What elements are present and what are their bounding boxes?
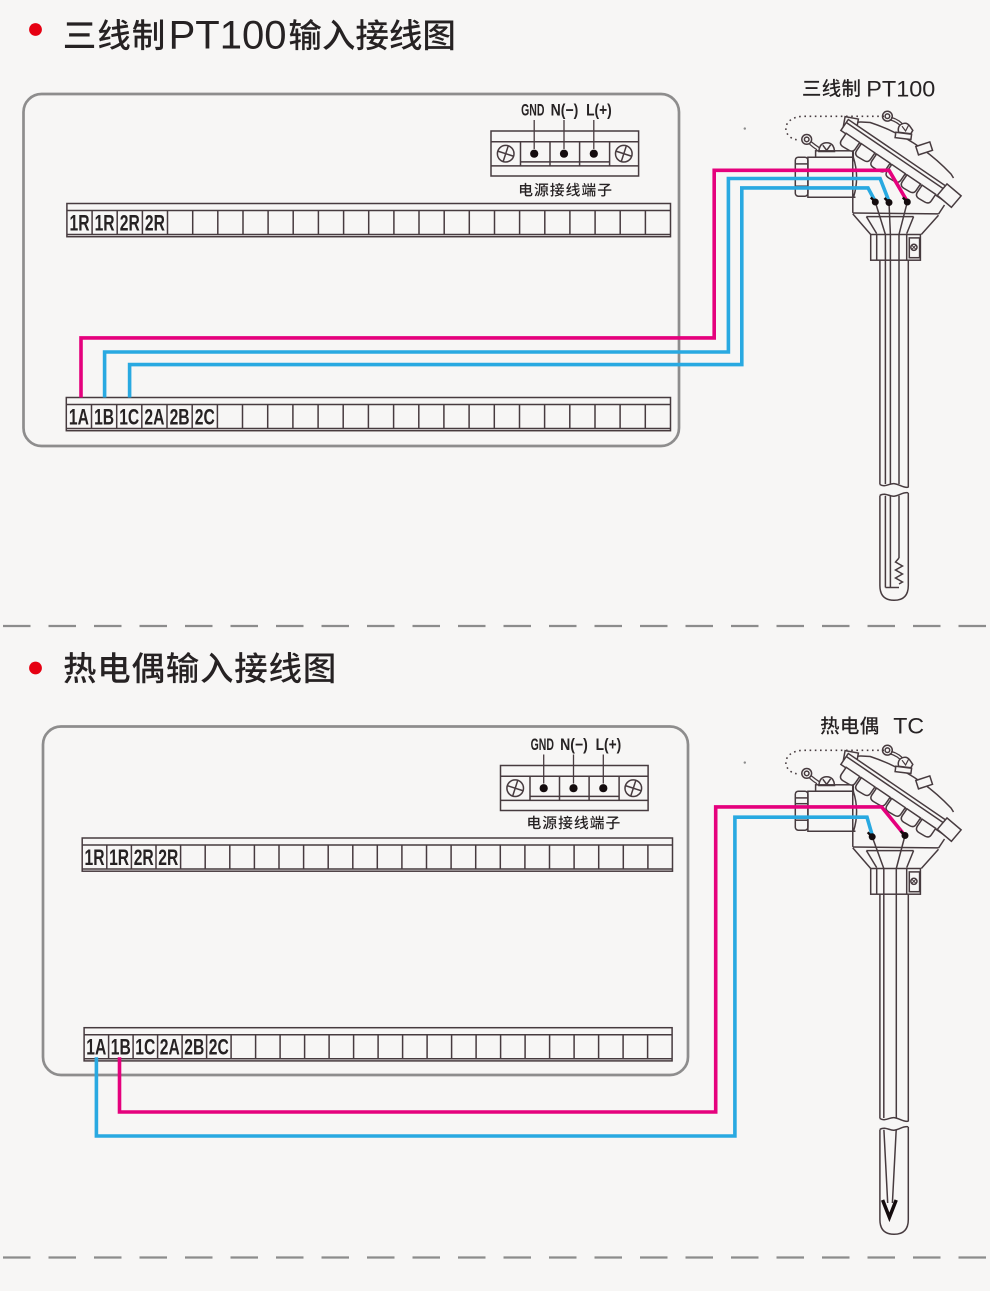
svg-text:2R: 2R xyxy=(120,210,140,235)
svg-text:PT100: PT100 xyxy=(169,14,287,58)
svg-text:1R: 1R xyxy=(95,210,115,235)
svg-text:2B: 2B xyxy=(184,1035,204,1060)
svg-text:2R: 2R xyxy=(145,210,165,235)
svg-text:2C: 2C xyxy=(195,404,215,429)
svg-text:1A: 1A xyxy=(69,404,89,429)
svg-text:1C: 1C xyxy=(135,1035,155,1060)
svg-text:2R: 2R xyxy=(134,845,154,870)
svg-text:TC: TC xyxy=(893,714,924,739)
svg-text:1A: 1A xyxy=(86,1035,106,1060)
svg-text:1R: 1R xyxy=(85,845,105,870)
svg-text:2C: 2C xyxy=(209,1035,229,1060)
svg-text:1R: 1R xyxy=(109,845,129,870)
svg-text:1B: 1B xyxy=(111,1035,131,1060)
svg-text:1C: 1C xyxy=(119,404,139,429)
svg-text:1B: 1B xyxy=(94,404,114,429)
svg-text:2A: 2A xyxy=(160,1035,180,1060)
svg-text:2A: 2A xyxy=(144,404,164,429)
svg-text:1R: 1R xyxy=(70,210,90,235)
svg-text:2R: 2R xyxy=(158,845,178,870)
svg-text:2B: 2B xyxy=(170,404,190,429)
svg-text:PT100: PT100 xyxy=(866,76,935,101)
